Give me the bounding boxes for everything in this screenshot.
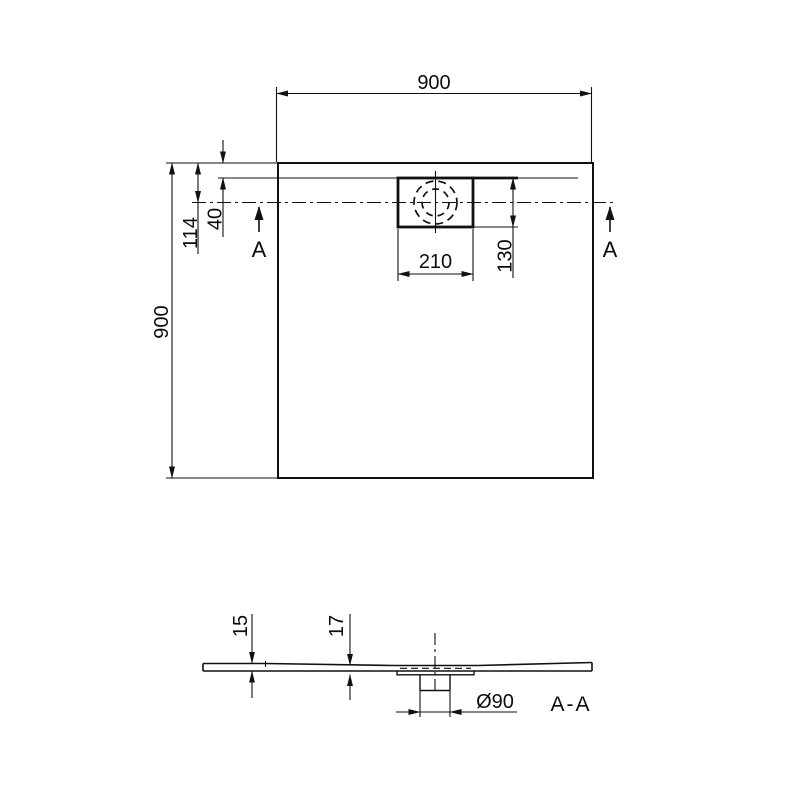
dim-40-value: 40 [205,208,227,230]
plan-view: 900 900 114 40 210 [151,72,618,478]
shower-tray-drawing: 900 900 114 40 210 [0,0,800,800]
dim-diameter-90: Ø90 [396,691,517,718]
section-title: A-A [550,693,591,716]
section-marker-left: A [252,207,267,262]
dim-40: 40 [205,140,227,237]
dim-114: 114 [180,163,202,254]
section-letter: A [603,237,618,262]
dim-width-value: 900 [417,72,450,94]
dim-height-value: 900 [151,305,173,338]
profile-slope-right [478,663,592,666]
profile-slope-left [266,664,394,666]
dim-210: 210 [398,229,473,281]
section-letter: A [252,237,267,262]
dim-diameter-value: Ø90 [476,691,514,713]
dim-210-value: 210 [419,251,452,273]
technical-drawing-canvas: 900 900 114 40 210 [0,0,800,800]
dim-15-value: 15 [230,615,252,637]
dim-130: 130 [495,178,517,278]
dim-17: 17 [326,614,350,700]
section-marker-right: A [603,207,618,262]
section-view: 15 17 Ø90 A-A [203,614,592,717]
dim-width-900: 900 [277,72,592,162]
dim-15: 15 [230,614,252,698]
dim-114-value: 114 [180,217,202,249]
dim-130-value: 130 [495,239,517,272]
dim-17-value: 17 [326,615,348,637]
